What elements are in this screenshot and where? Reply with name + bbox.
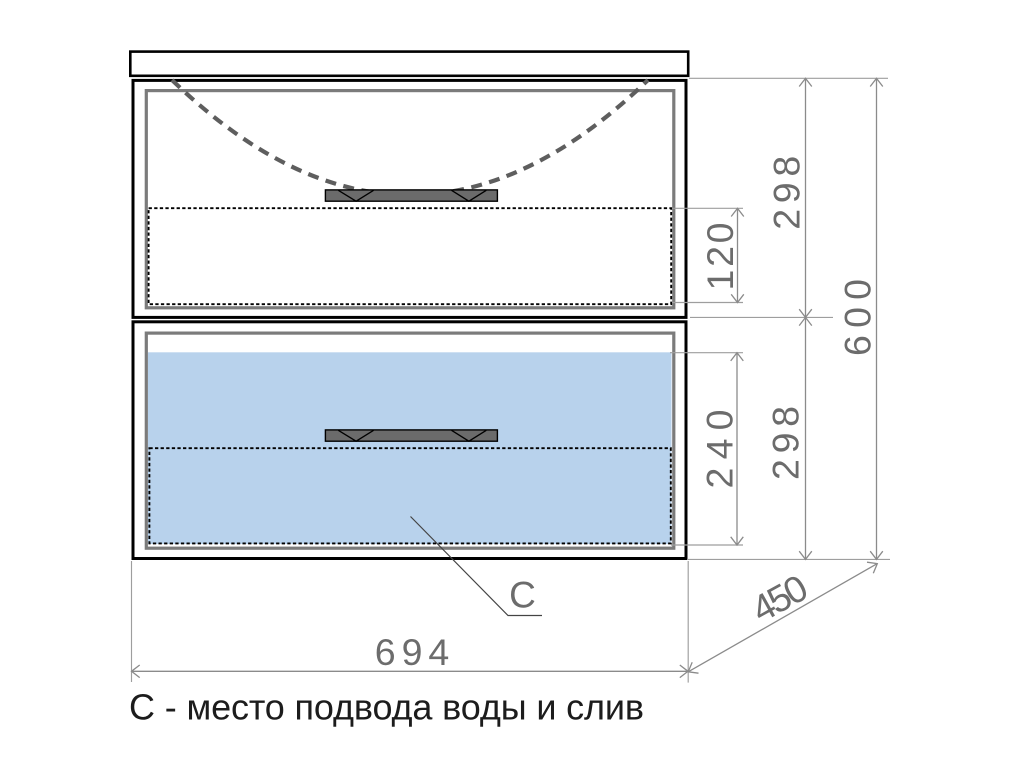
svg-text:С - место подвода воды и слив: С - место подвода воды и слив (129, 687, 644, 728)
svg-text:C: C (509, 574, 536, 615)
svg-text:120: 120 (699, 223, 741, 291)
svg-text:694: 694 (375, 631, 450, 673)
svg-text:298: 298 (766, 156, 808, 230)
svg-text:240: 240 (698, 410, 740, 489)
svg-text:450: 450 (744, 566, 814, 630)
svg-text:298: 298 (764, 406, 806, 480)
svg-text:600: 600 (836, 279, 878, 356)
